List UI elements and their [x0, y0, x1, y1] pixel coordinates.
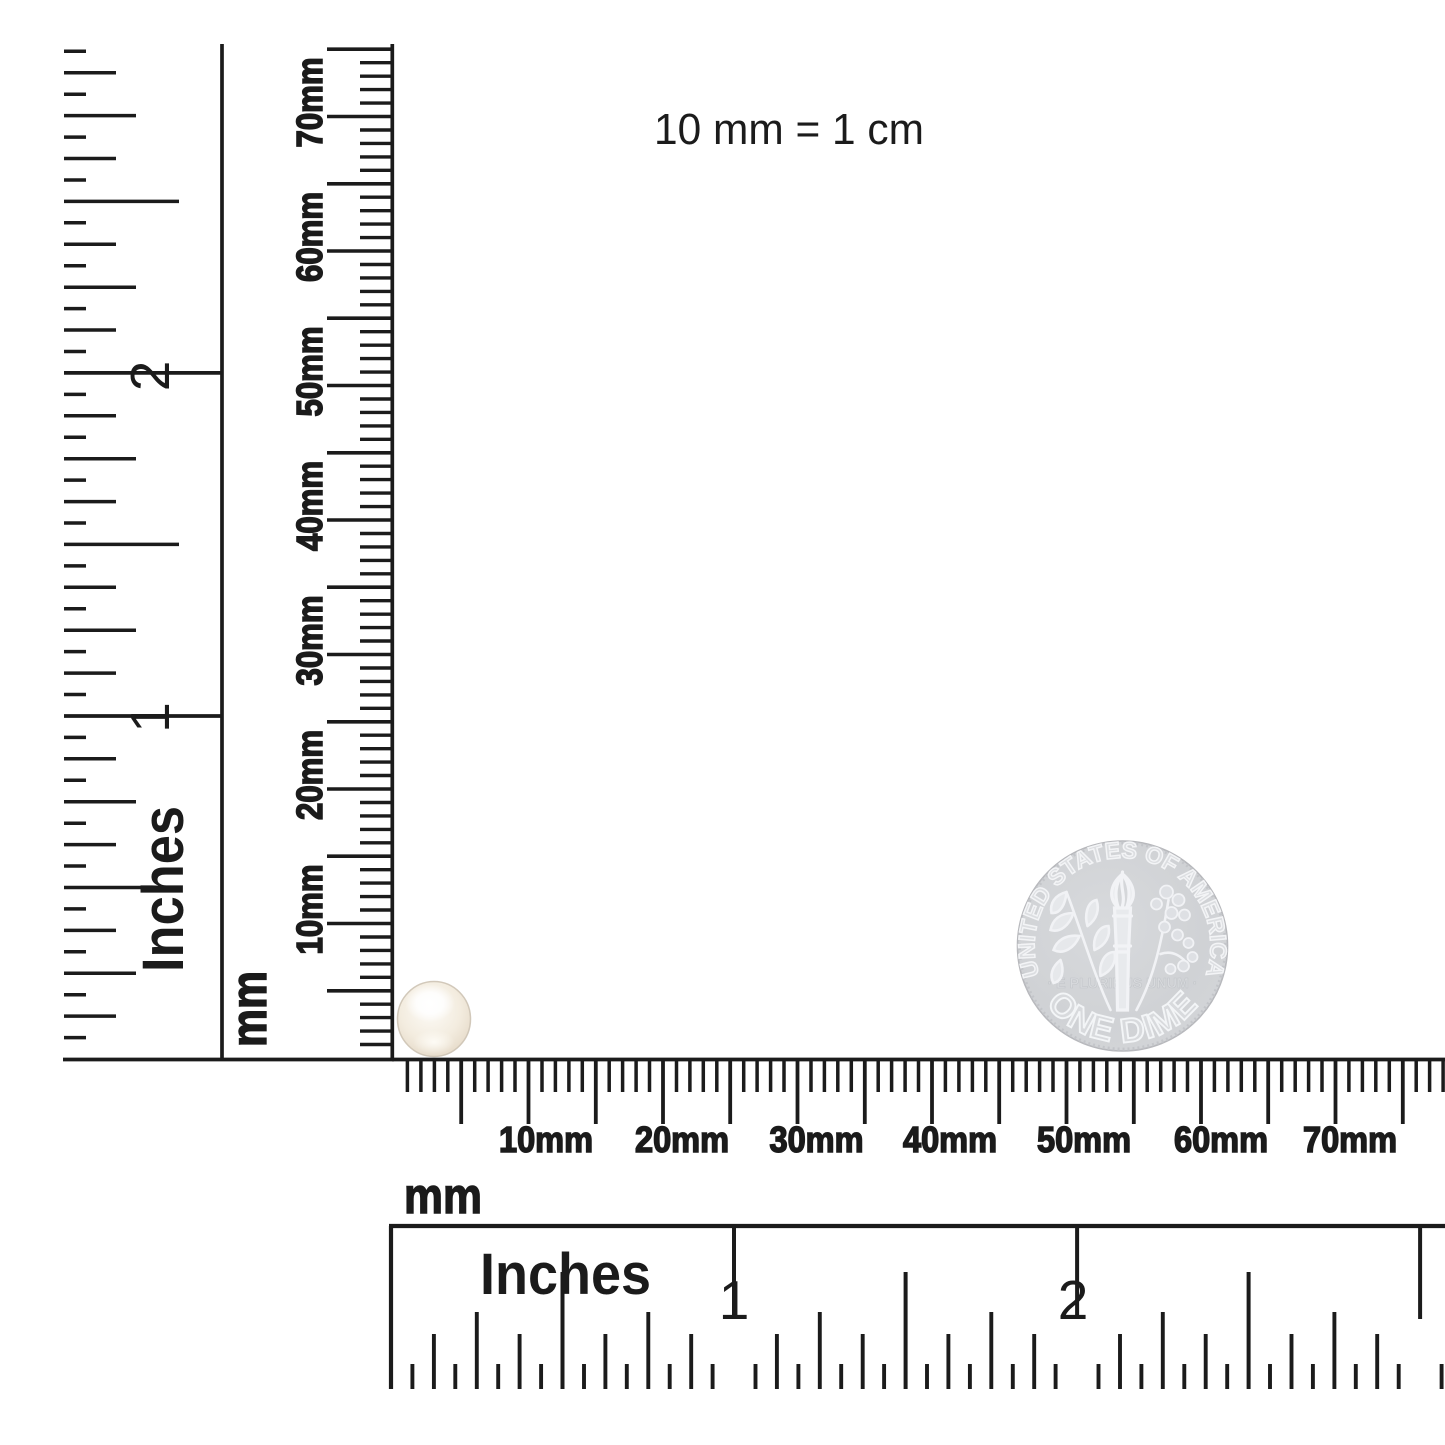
svg-text:2: 2	[119, 361, 181, 392]
svg-text:1: 1	[719, 1269, 750, 1331]
svg-text:60mm: 60mm	[289, 192, 330, 282]
svg-text:30mm: 30mm	[770, 1119, 864, 1160]
svg-text:1: 1	[119, 702, 181, 733]
svg-text:20mm: 20mm	[289, 730, 330, 820]
svg-text:60mm: 60mm	[1174, 1119, 1268, 1160]
svg-text:70mm: 70mm	[289, 58, 330, 148]
svg-text:Inches: Inches	[131, 806, 196, 972]
svg-text:50mm: 50mm	[289, 327, 330, 417]
svg-text:10mm: 10mm	[499, 1119, 593, 1160]
svg-text:2: 2	[1058, 1269, 1089, 1331]
svg-text:10 mm = 1 cm: 10 mm = 1 cm	[654, 105, 924, 154]
svg-text:Inches: Inches	[480, 1242, 651, 1307]
svg-text:40mm: 40mm	[903, 1119, 997, 1160]
svg-text:30mm: 30mm	[289, 596, 330, 686]
svg-text:10mm: 10mm	[289, 865, 330, 955]
svg-text:70mm: 70mm	[1303, 1119, 1397, 1160]
svg-text:20mm: 20mm	[635, 1119, 729, 1160]
svg-text:mm: mm	[404, 1168, 482, 1224]
svg-text:50mm: 50mm	[1037, 1119, 1131, 1160]
svg-text:40mm: 40mm	[289, 461, 330, 551]
svg-text:mm: mm	[221, 971, 277, 1047]
